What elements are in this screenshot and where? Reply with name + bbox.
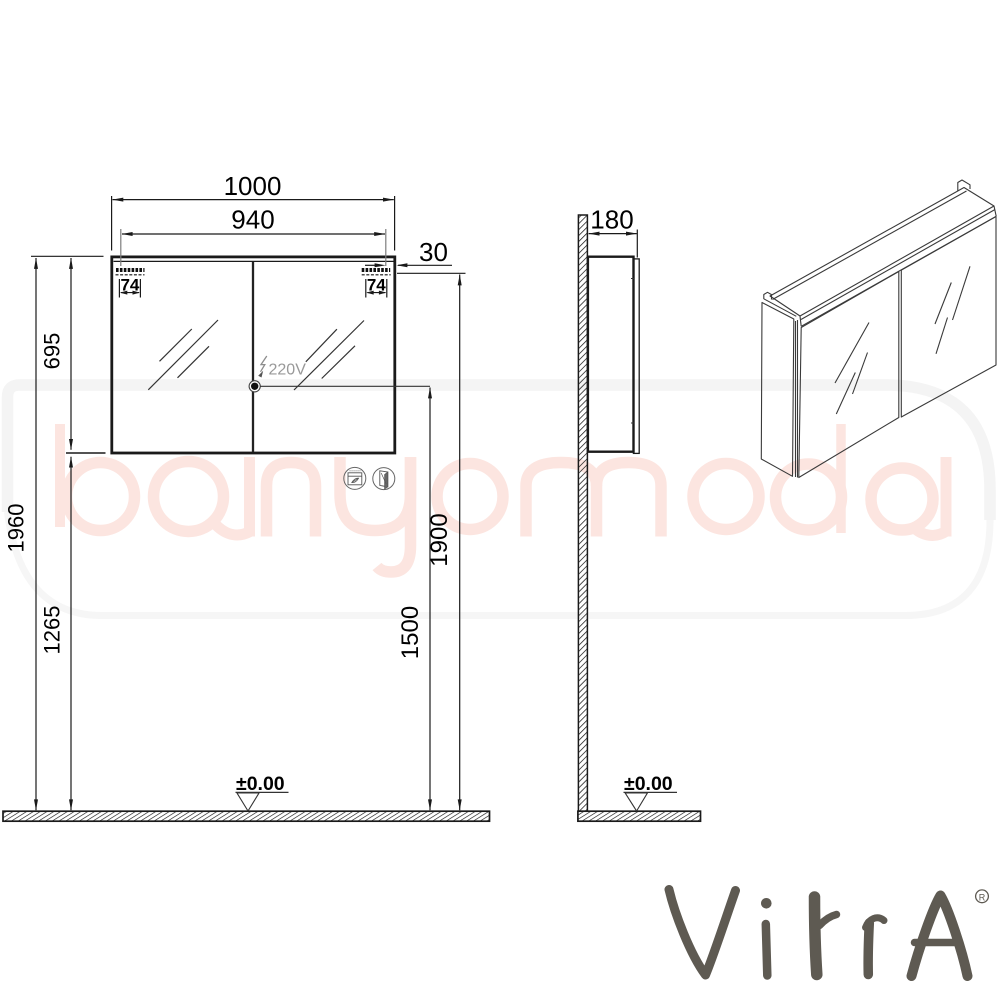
svg-text:74: 74 bbox=[367, 276, 386, 295]
svg-text:695: 695 bbox=[40, 333, 65, 370]
svg-text:940: 940 bbox=[231, 205, 274, 235]
svg-text:220V: 220V bbox=[269, 362, 307, 379]
svg-text:30: 30 bbox=[419, 237, 448, 267]
svg-text:1960: 1960 bbox=[4, 504, 29, 553]
svg-text:1265: 1265 bbox=[40, 606, 65, 655]
svg-text:74: 74 bbox=[120, 276, 139, 295]
svg-text:1500: 1500 bbox=[397, 606, 424, 659]
svg-text:180: 180 bbox=[590, 205, 633, 235]
svg-text:R: R bbox=[979, 893, 986, 903]
svg-text:±0.00: ±0.00 bbox=[624, 773, 673, 795]
svg-text:1000: 1000 bbox=[224, 171, 282, 201]
svg-text:±0.00: ±0.00 bbox=[236, 773, 285, 795]
